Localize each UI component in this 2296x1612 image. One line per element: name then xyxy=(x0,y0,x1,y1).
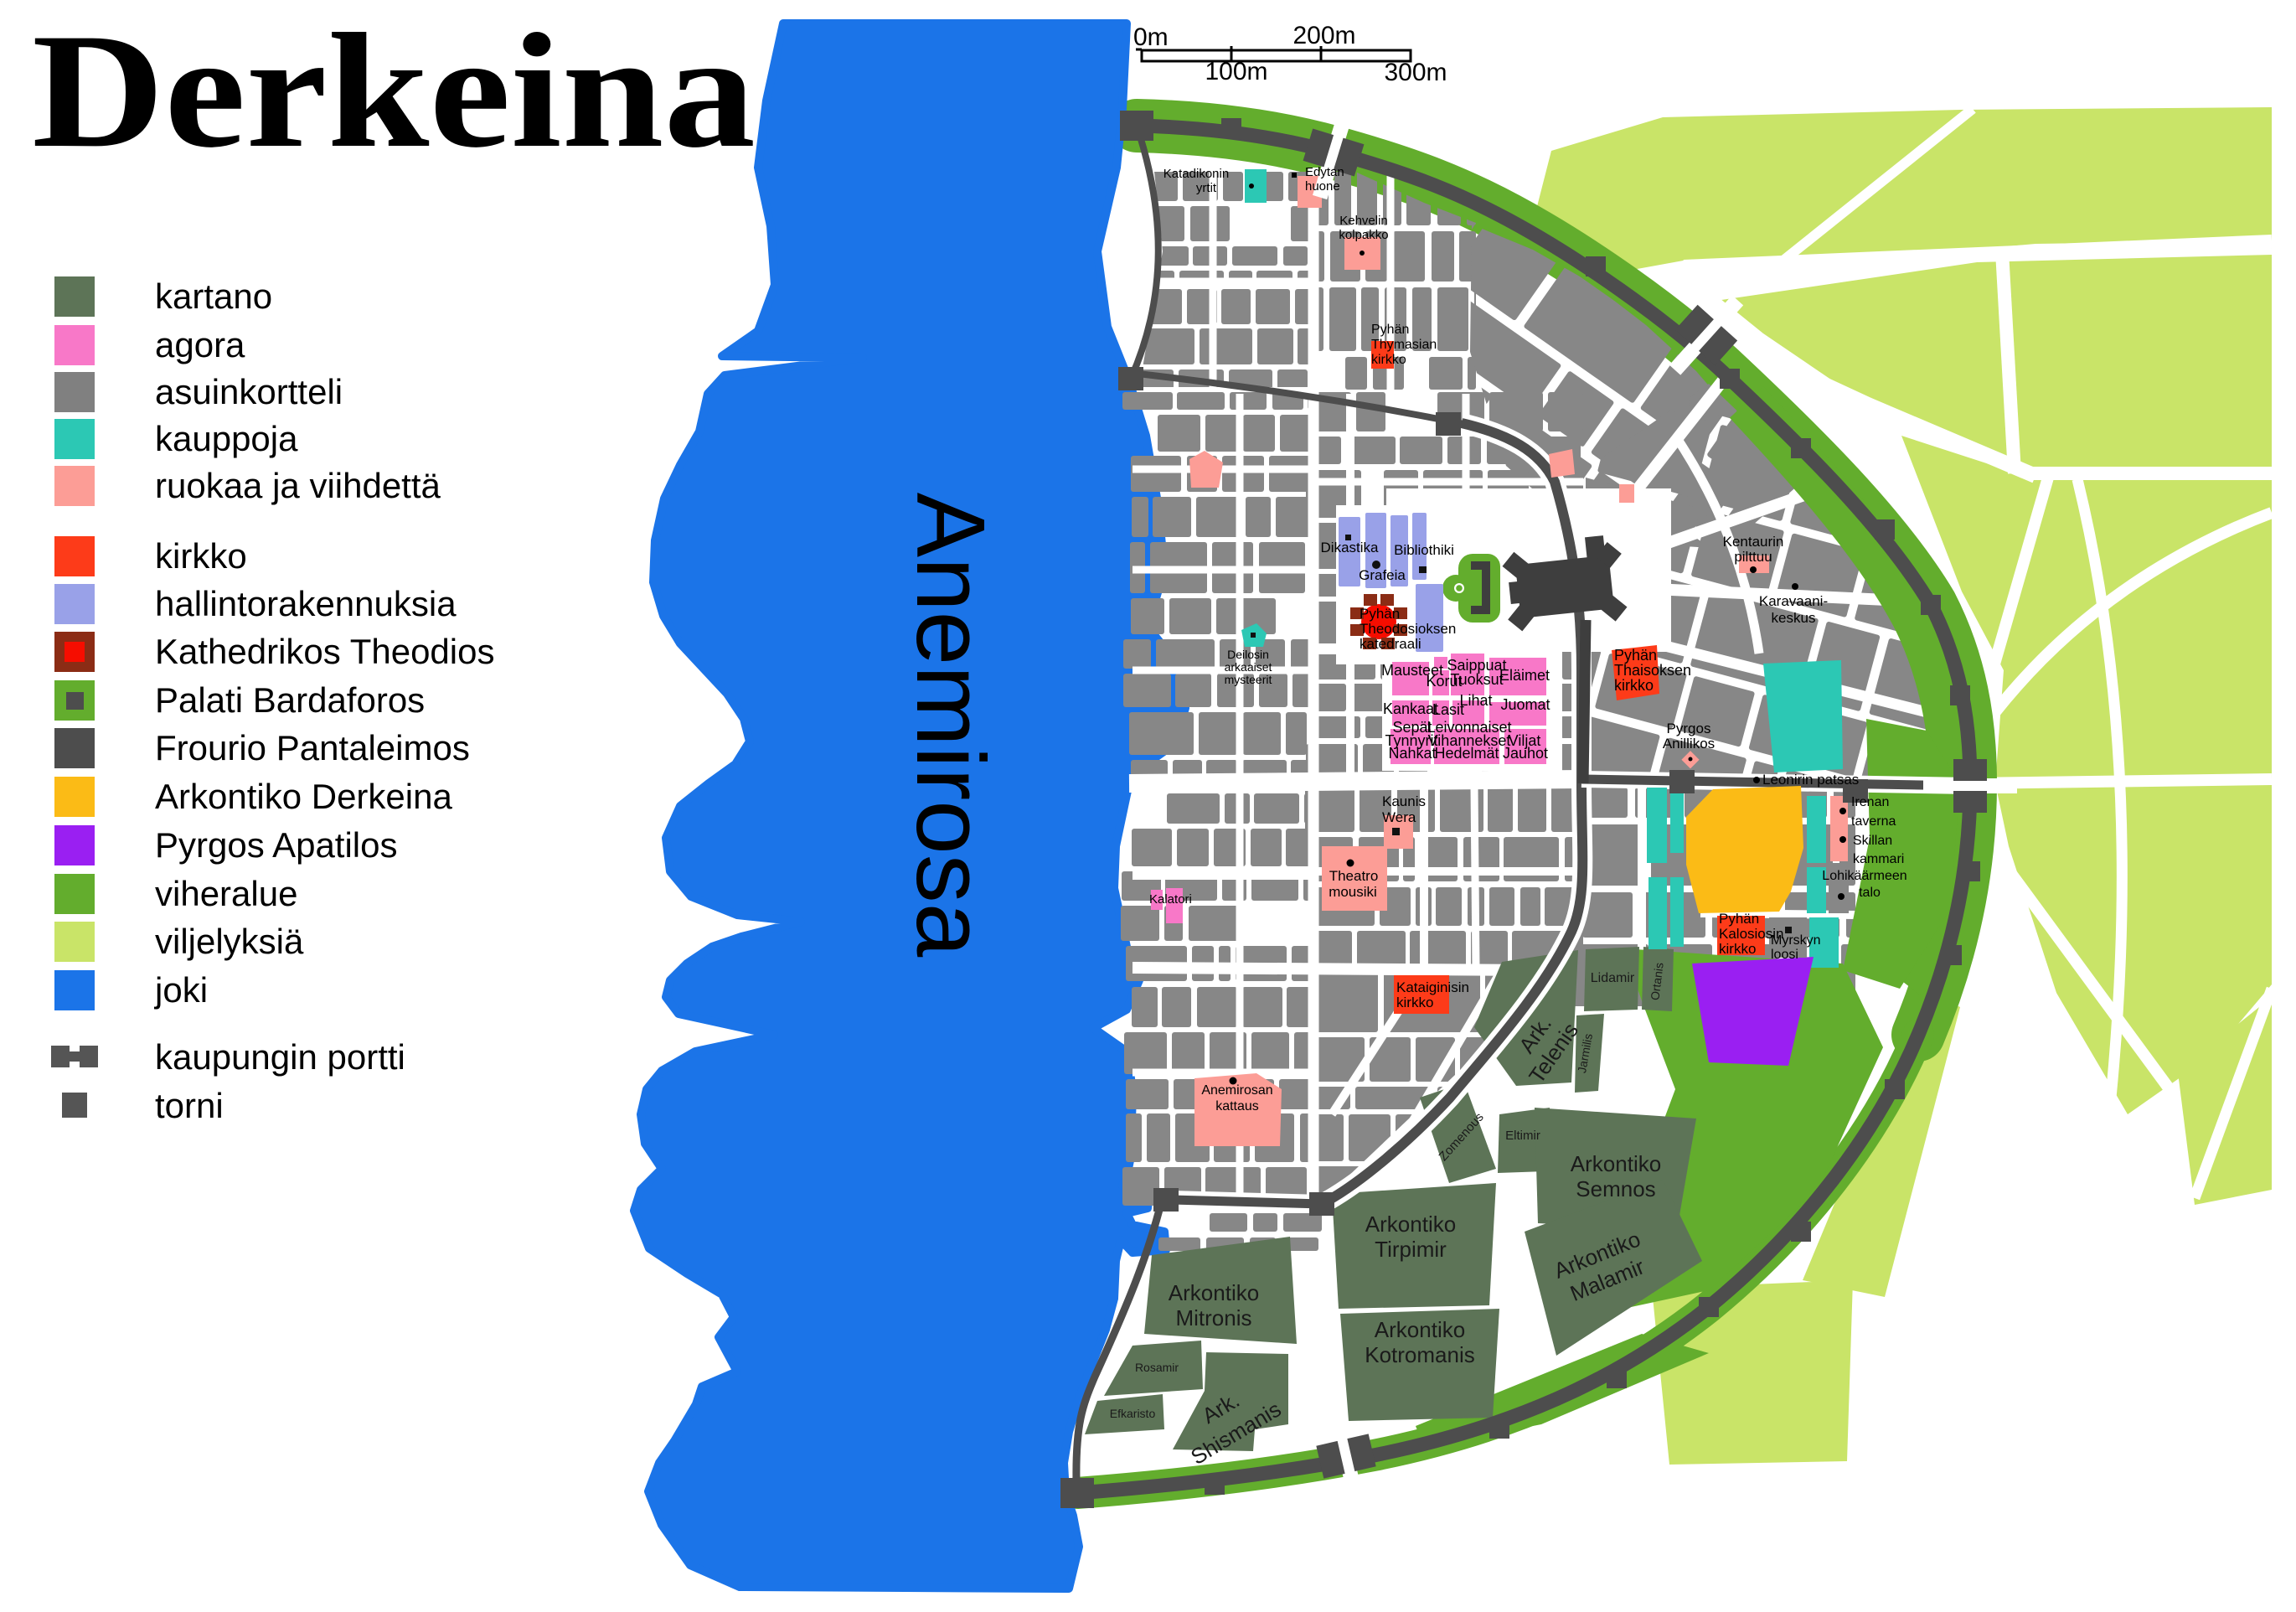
svg-text:huone: huone xyxy=(1305,179,1340,194)
svg-text:Juomat: Juomat xyxy=(1500,696,1550,713)
svg-text:Skillan: Skillan xyxy=(1853,834,1892,848)
svg-text:Theatro: Theatro xyxy=(1329,868,1379,884)
svg-text:Anillikos: Anillikos xyxy=(1663,736,1715,752)
svg-text:Thymasian: Thymasian xyxy=(1371,338,1437,352)
svg-text:Anemirosa: Anemirosa xyxy=(896,493,1005,958)
svg-text:Deilosin: Deilosin xyxy=(1227,648,1269,661)
svg-text:Eltimir: Eltimir xyxy=(1505,1129,1540,1143)
svg-text:Eläimet: Eläimet xyxy=(1499,667,1550,684)
svg-text:Frourio Pantaleimos: Frourio Pantaleimos xyxy=(155,728,470,767)
svg-text:asuinkortteli: asuinkortteli xyxy=(155,372,343,411)
svg-text:Rosamir: Rosamir xyxy=(1135,1361,1179,1374)
svg-text:torni: torni xyxy=(155,1086,224,1125)
svg-text:Pyhän: Pyhän xyxy=(1614,647,1657,664)
svg-text:Kaunis: Kaunis xyxy=(1382,793,1426,809)
svg-text:Theodosioksen: Theodosioksen xyxy=(1360,621,1456,637)
svg-text:Bibliothiki: Bibliothiki xyxy=(1394,542,1454,558)
svg-text:Arkontiko: Arkontiko xyxy=(1571,1151,1661,1176)
svg-text:Kotromanis: Kotromanis xyxy=(1365,1342,1475,1367)
svg-text:kaupungin portti: kaupungin portti xyxy=(155,1037,405,1077)
svg-text:100m: 100m xyxy=(1205,58,1267,85)
svg-text:kattaus: kattaus xyxy=(1215,1099,1259,1113)
svg-text:0m: 0m xyxy=(1133,23,1169,51)
svg-text:Edytan: Edytan xyxy=(1305,165,1344,179)
svg-text:Pyhän: Pyhän xyxy=(1360,606,1400,622)
svg-text:Thaisoksen: Thaisoksen xyxy=(1614,662,1691,679)
svg-text:Kalatori: Kalatori xyxy=(1149,892,1192,907)
svg-text:Katadikonin: Katadikonin xyxy=(1163,167,1229,181)
svg-text:mysteerit: mysteerit xyxy=(1225,673,1272,686)
svg-text:Lihat: Lihat xyxy=(1459,692,1492,709)
svg-text:Tirpimir: Tirpimir xyxy=(1375,1237,1447,1262)
svg-text:Kathedrikos Theodios: Kathedrikos Theodios xyxy=(155,632,494,671)
svg-text:Pyhän: Pyhän xyxy=(1371,323,1409,337)
svg-text:Leonirin patsas: Leonirin patsas xyxy=(1762,772,1859,788)
svg-text:200m: 200m xyxy=(1292,22,1355,49)
svg-text:viljelyksiä: viljelyksiä xyxy=(155,922,304,961)
svg-text:kirkko: kirkko xyxy=(1371,353,1406,367)
svg-text:Palati Bardaforos: Palati Bardaforos xyxy=(155,680,425,720)
svg-text:Myrskyn: Myrskyn xyxy=(1771,933,1821,948)
svg-text:keskus: keskus xyxy=(1772,610,1816,626)
svg-text:Hedelmät: Hedelmät xyxy=(1434,745,1499,762)
svg-text:kammari: kammari xyxy=(1853,852,1904,866)
svg-text:Dikastika: Dikastika xyxy=(1321,540,1380,555)
svg-text:Arkontiko Derkeina: Arkontiko Derkeina xyxy=(155,777,452,816)
svg-text:Anemirosan: Anemirosan xyxy=(1201,1083,1272,1098)
svg-text:Tuoksut: Tuoksut xyxy=(1450,671,1503,688)
svg-text:agora: agora xyxy=(155,325,245,364)
svg-text:Pyrgos: Pyrgos xyxy=(1667,721,1711,736)
svg-text:viheralue: viheralue xyxy=(155,874,297,913)
svg-text:Grafeia: Grafeia xyxy=(1359,567,1406,583)
svg-text:Jauhot: Jauhot xyxy=(1503,745,1548,762)
svg-text:loosi: loosi xyxy=(1771,948,1798,962)
svg-text:arkaaiset: arkaaiset xyxy=(1225,660,1272,674)
svg-text:taverna: taverna xyxy=(1851,814,1896,829)
svg-text:Kankaat: Kankaat xyxy=(1383,700,1438,717)
svg-text:kirkko: kirkko xyxy=(1396,995,1433,1010)
svg-text:Kehvelin: Kehvelin xyxy=(1339,214,1388,228)
svg-text:talo: talo xyxy=(1859,886,1881,900)
svg-text:Irenan: Irenan xyxy=(1851,795,1889,809)
svg-text:Pyhän: Pyhän xyxy=(1719,911,1759,927)
svg-text:Arkontiko: Arkontiko xyxy=(1365,1212,1456,1237)
svg-text:kirkko: kirkko xyxy=(1614,677,1654,694)
svg-text:mousiki: mousiki xyxy=(1329,884,1377,900)
svg-text:Pyrgos Apatilos: Pyrgos Apatilos xyxy=(155,825,398,865)
svg-text:Lidamir: Lidamir xyxy=(1591,971,1635,985)
svg-text:kolpakko: kolpakko xyxy=(1339,228,1388,242)
svg-text:ruokaa ja viihdettä: ruokaa ja viihdettä xyxy=(155,466,441,505)
svg-text:Efkaristo: Efkaristo xyxy=(1110,1407,1156,1420)
svg-text:Karavaani-: Karavaani- xyxy=(1759,593,1828,609)
svg-text:joki: joki xyxy=(153,970,208,1010)
svg-text:Mitronis: Mitronis xyxy=(1175,1305,1251,1330)
svg-text:Kentaurin: Kentaurin xyxy=(1723,534,1784,550)
svg-text:kartano: kartano xyxy=(155,276,272,316)
svg-text:kauppoja: kauppoja xyxy=(155,419,298,458)
svg-text:kirkko: kirkko xyxy=(155,536,247,576)
svg-text:Arkontiko: Arkontiko xyxy=(1375,1317,1465,1342)
svg-text:Semnos: Semnos xyxy=(1576,1176,1655,1201)
svg-text:300m: 300m xyxy=(1384,59,1447,86)
svg-text:Derkeina: Derkeina xyxy=(32,0,756,182)
svg-text:Lohikäärmeen: Lohikäärmeen xyxy=(1822,869,1906,883)
svg-text:Wera: Wera xyxy=(1382,809,1416,825)
svg-text:Arkontiko: Arkontiko xyxy=(1169,1280,1259,1305)
svg-text:pilttuu: pilttuu xyxy=(1734,549,1772,565)
svg-text:kirkko: kirkko xyxy=(1719,941,1756,957)
svg-text:katedraali: katedraali xyxy=(1360,636,1421,652)
svg-text:hallintorakennuksia: hallintorakennuksia xyxy=(155,584,457,623)
svg-text:yrtit: yrtit xyxy=(1196,181,1217,195)
svg-text:Kataiginisin: Kataiginisin xyxy=(1396,979,1469,995)
